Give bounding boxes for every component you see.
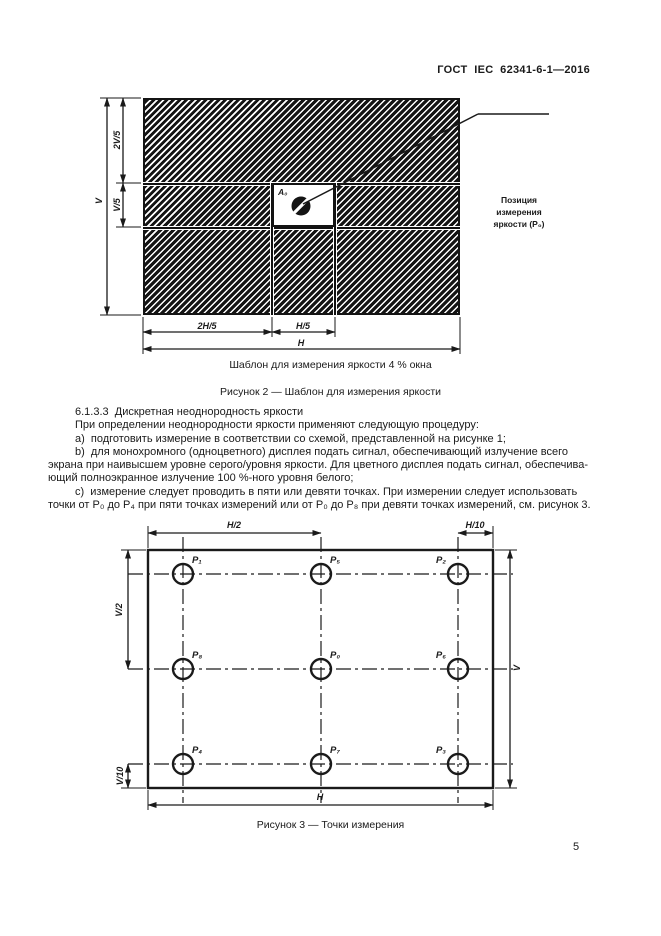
dim-label-h: H bbox=[291, 337, 311, 349]
label-p6: P₆ bbox=[428, 650, 446, 661]
point-p0 bbox=[311, 659, 331, 679]
point-p7 bbox=[311, 754, 331, 774]
point-p5 bbox=[311, 564, 331, 584]
measurement-window-4-percent: A₀ bbox=[272, 183, 335, 227]
label-p7: P₇ bbox=[330, 745, 340, 756]
point-p6 bbox=[448, 659, 468, 679]
figure-2-subcaption: Шаблон для измерения яркости 4 % окна bbox=[0, 359, 661, 371]
body-line: b) для монохромного (одноцветного) диспл… bbox=[48, 446, 616, 459]
callout-line-3: яркости (P₀) bbox=[478, 218, 560, 230]
dim-label-v2: V/2 bbox=[113, 596, 125, 624]
label-p3: P₃ bbox=[428, 745, 446, 756]
figure-2-caption: Рисунок 2 — Шаблон для измерения яркости bbox=[0, 386, 661, 398]
body-line: ющий полноэкранное излучение 100 %-ного … bbox=[48, 472, 616, 485]
dim-label-h10: H/10 bbox=[455, 519, 495, 531]
label-p4: P₄ bbox=[192, 745, 202, 756]
dim-label-h: H bbox=[310, 791, 330, 803]
horizontal-division-line-lower bbox=[143, 227, 460, 229]
dim-label-2h5: 2H/5 bbox=[187, 320, 227, 332]
body-line: a) подготовить измерение в соответствии … bbox=[48, 433, 616, 446]
page-number: 5 bbox=[566, 841, 586, 853]
point-p1 bbox=[173, 564, 193, 584]
body-line: При определении неоднородности яркости п… bbox=[48, 419, 616, 432]
body-line: точки от P₀ до P₄ при пяти точках измере… bbox=[48, 499, 616, 512]
document-page: ГОСТ IEC 62341-6-1—2016 A₀ bbox=[0, 0, 661, 936]
label-p8: P₈ bbox=[192, 650, 202, 661]
dim-label-v: V bbox=[511, 660, 523, 676]
figure-3-caption: Рисунок 3 — Точки измерения bbox=[0, 819, 661, 831]
dim-label-v10: V/10 bbox=[114, 760, 126, 792]
point-p3 bbox=[448, 754, 468, 774]
label-p1: P₁ bbox=[192, 555, 202, 566]
clause-6-1-3-3-text: 6.1.3.3 Дискретная неоднородность яркост… bbox=[48, 406, 616, 512]
figure-2-luminance-template: A₀ bbox=[0, 95, 661, 365]
body-line: c) измерение следует проводить в пяти ил… bbox=[48, 486, 616, 499]
body-line: экрана при наивысшем уровне серого/уровн… bbox=[48, 459, 616, 472]
callout-line-1: Позиция bbox=[478, 194, 560, 206]
callout-line-2: измерения bbox=[478, 206, 560, 218]
window-area-label: A₀ bbox=[278, 187, 288, 197]
figure-3-measurement-points: P₁ P₅ P₂ P₈ P₀ P₆ P₄ P₇ P₃ H/2 H/10 V/2 … bbox=[0, 515, 661, 855]
point-p4 bbox=[173, 754, 193, 774]
point-p8 bbox=[173, 659, 193, 679]
dim-label-v: V bbox=[93, 187, 105, 215]
dim-label-2v5: 2V/5 bbox=[111, 126, 123, 154]
callout-label-p0: Позиция измерения яркости (P₀) bbox=[478, 194, 560, 230]
document-header: ГОСТ IEC 62341-6-1—2016 bbox=[437, 64, 590, 76]
point-p2 bbox=[448, 564, 468, 584]
dim-label-h5: H/5 bbox=[285, 320, 321, 332]
dim-label-v5: V/5 bbox=[111, 194, 123, 216]
dim-label-h2: H/2 bbox=[214, 519, 254, 531]
clause-heading: 6.1.3.3 Дискретная неоднородность яркост… bbox=[48, 406, 616, 419]
label-p5: P₅ bbox=[330, 555, 340, 566]
label-p2: P₂ bbox=[428, 555, 446, 566]
label-p0: P₀ bbox=[330, 650, 340, 661]
